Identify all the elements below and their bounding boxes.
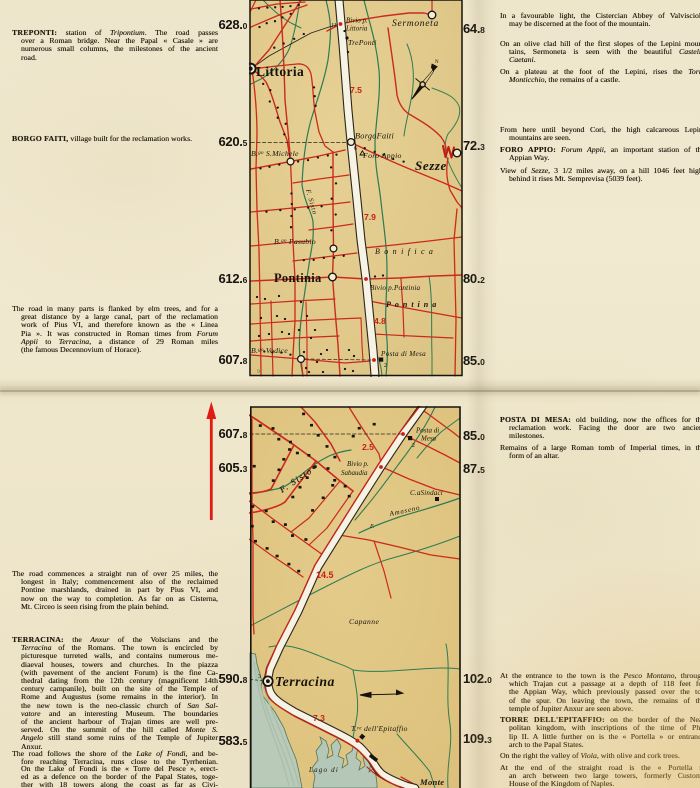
svg-text:Pontina: Pontina [386, 300, 440, 309]
svg-text:Pontinia: Pontinia [274, 271, 322, 285]
svg-text:F.: F. [369, 524, 374, 530]
svg-text:Littoria: Littoria [345, 25, 368, 33]
svg-text:N: N [435, 60, 439, 65]
svg-text:Mesa: Mesa [420, 435, 437, 443]
svg-text:2: 2 [384, 363, 387, 369]
svg-text:B.go Pasubio: B.go Pasubio [274, 237, 316, 246]
svg-text:Bivio p.: Bivio p. [346, 17, 368, 25]
svg-text:BorgoFaiti: BorgoFaiti [355, 132, 395, 141]
svg-text:B.go Vodice: B.go Vodice [251, 346, 288, 355]
svg-text:Capanne: Capanne [349, 617, 379, 626]
svg-text:Foro Appio: Foro Appio [362, 151, 402, 160]
svg-text:7.3: 7.3 [313, 713, 325, 723]
svg-text:11: 11 [331, 23, 337, 29]
svg-text:Bivio p.: Bivio p. [347, 460, 369, 468]
svg-text:2.5: 2.5 [362, 442, 374, 452]
svg-text:3: 3 [258, 674, 261, 680]
svg-text:Posta di Mesa: Posta di Mesa [380, 350, 426, 358]
svg-text:Sermoneta: Sermoneta [392, 19, 439, 29]
svg-text:Littoria: Littoria [256, 64, 304, 79]
svg-text:Lago di: Lago di [308, 766, 339, 774]
svg-text:TrePonti: TrePonti [348, 38, 377, 47]
svg-text:Posta di: Posta di [415, 427, 439, 435]
svg-text:7.5: 7.5 [350, 85, 362, 95]
svg-text:4.8: 4.8 [374, 316, 386, 326]
svg-text:2: 2 [412, 443, 415, 449]
svg-text:Terracina: Terracina [275, 674, 335, 689]
svg-text:Sezze: Sezze [415, 158, 447, 173]
svg-text:9: 9 [257, 369, 260, 375]
svg-text:7.9: 7.9 [364, 212, 376, 222]
svg-text:14.5: 14.5 [316, 570, 334, 580]
svg-text:6: 6 [354, 146, 357, 152]
svg-text:Bonifica: Bonifica [375, 247, 437, 256]
svg-text:Sabaudia: Sabaudia [341, 469, 368, 477]
svg-text:Bivio p.Pontinia: Bivio p.Pontinia [370, 284, 421, 292]
svg-text:C.aSindaci: C.aSindaci [410, 489, 443, 497]
